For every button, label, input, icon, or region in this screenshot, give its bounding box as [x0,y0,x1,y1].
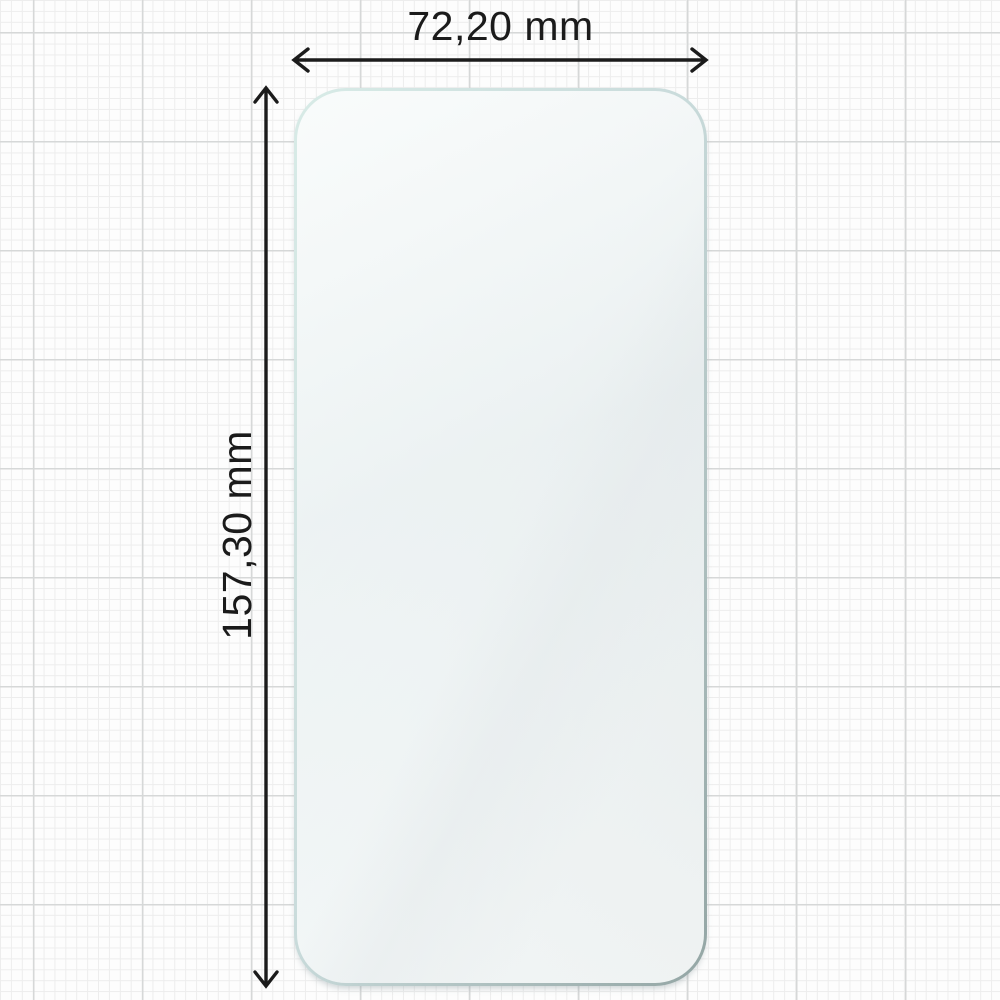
screen-protector-glass [294,88,707,986]
dimension-diagram: 72,20 mm 157,30 mm [0,0,1000,1000]
glass-reflection [297,91,704,983]
glass-surface [297,91,704,983]
width-dimension-label: 72,20 mm [294,0,707,52]
height-dimension-label: 157,30 mm [213,385,261,685]
